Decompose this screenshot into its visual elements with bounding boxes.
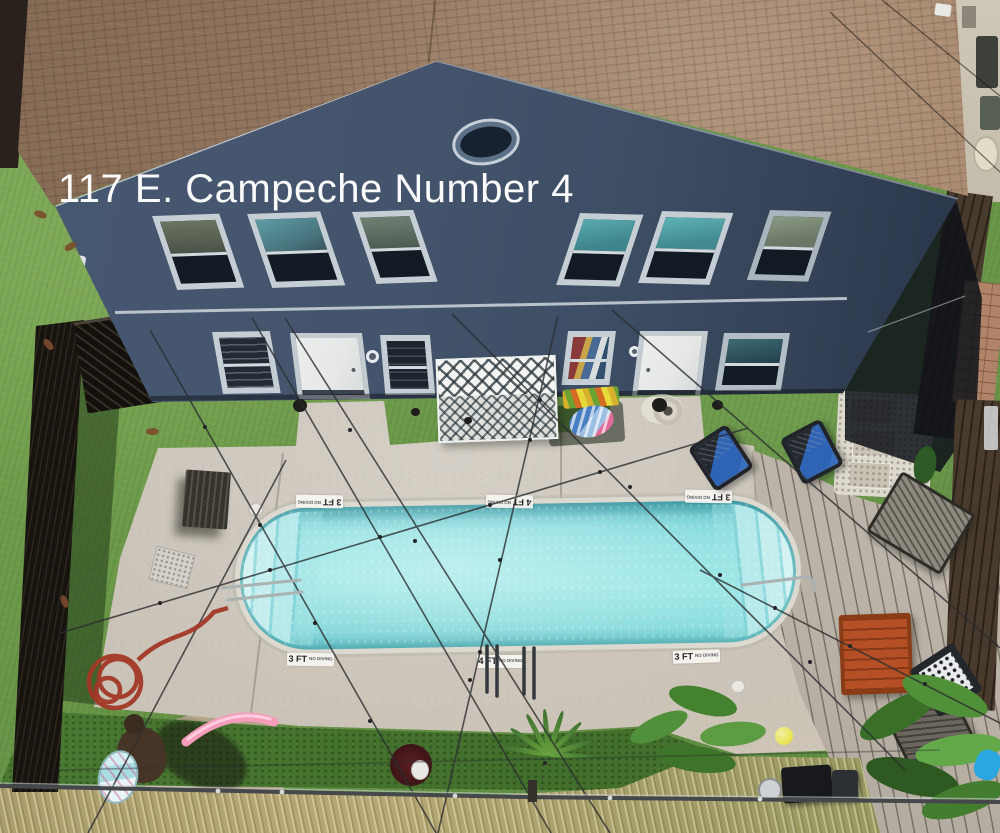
- sprinkler-head: [411, 408, 420, 416]
- entry-door: [290, 333, 370, 399]
- upper-window: [638, 211, 733, 285]
- stepping-stone: [848, 461, 891, 489]
- slatted-bench: [182, 469, 231, 529]
- dog-head: [124, 714, 144, 734]
- sprinkler-head: [464, 417, 472, 424]
- porch-light: [366, 350, 379, 363]
- upper-window: [747, 210, 832, 282]
- depth-marker: 3 FTNO DIVING: [673, 649, 720, 664]
- depth-marker: 4 FTNO DIVING: [486, 495, 533, 509]
- lower-window: [561, 331, 616, 385]
- aerial-photo-backyard-pool: 3 FTNO DIVING 4 FTNO DIVING 3 FTNO DIVIN…: [0, 0, 1000, 833]
- white-bucket: [411, 760, 429, 780]
- upper-window: [247, 211, 345, 288]
- depth-marker: 3 FTNO DIVING: [287, 653, 334, 667]
- planter-pot: [712, 400, 723, 410]
- entry-door: [632, 331, 708, 399]
- depth-marker: 3 FTNO DIVING: [685, 490, 732, 504]
- banana-plant: [628, 688, 778, 803]
- equipment-box: [962, 6, 976, 28]
- upper-window: [556, 213, 643, 287]
- white-ladder: [984, 406, 998, 450]
- roof-vent-cap: [934, 3, 952, 17]
- floor-trim-line: [115, 297, 847, 314]
- ac-unit: [980, 96, 1000, 130]
- depth-marker: 3 FTNO DIVING: [296, 495, 343, 509]
- address-overlay-text: 117 E. Campeche Number 4: [58, 167, 574, 212]
- swimming-pool: [239, 499, 797, 651]
- skimmer-lid: [248, 502, 264, 517]
- depth-marker: 4 FTNO DIVING: [477, 655, 524, 668]
- planter-pot: [293, 399, 307, 412]
- yucca-plant: [498, 712, 594, 798]
- dead-leaf: [146, 428, 159, 435]
- upper-window: [152, 214, 244, 290]
- bbq-grill: [781, 764, 833, 803]
- upper-window: [352, 210, 438, 284]
- lower-window: [715, 333, 790, 391]
- lower-window: [212, 331, 281, 394]
- ac-unit: [976, 36, 998, 88]
- propane-tank: [973, 136, 999, 172]
- lower-window: [380, 335, 435, 395]
- white-lattice-enclosure: [436, 355, 559, 443]
- planter-pot: [652, 398, 667, 412]
